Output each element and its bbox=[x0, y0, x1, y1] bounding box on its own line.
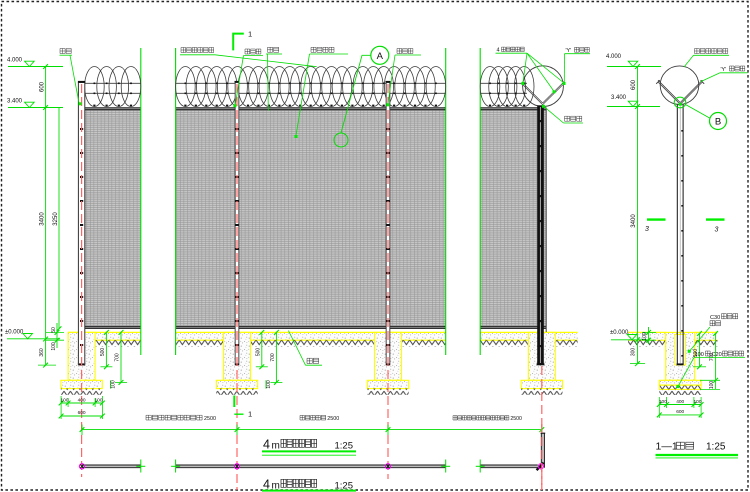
svg-text:100: 100 bbox=[111, 380, 117, 389]
svg-text:50: 50 bbox=[51, 327, 57, 333]
svg-text:A: A bbox=[377, 51, 384, 62]
svg-text:100: 100 bbox=[51, 342, 57, 351]
svg-text:3.400: 3.400 bbox=[7, 99, 23, 105]
svg-text:600: 600 bbox=[676, 409, 684, 415]
svg-text:3400: 3400 bbox=[40, 212, 46, 226]
svg-text:500: 500 bbox=[255, 348, 261, 357]
svg-text:±0.000: ±0.000 bbox=[5, 330, 24, 336]
svg-text:m: m bbox=[272, 440, 280, 451]
svg-text:4.000: 4.000 bbox=[7, 58, 23, 64]
svg-text:3.400: 3.400 bbox=[611, 95, 627, 101]
svg-text:2500: 2500 bbox=[204, 416, 216, 422]
svg-text:4: 4 bbox=[263, 437, 270, 451]
svg-text:100: 100 bbox=[642, 332, 648, 341]
svg-text:2500: 2500 bbox=[510, 416, 522, 422]
svg-text:600: 600 bbox=[631, 79, 637, 90]
svg-text:3: 3 bbox=[645, 226, 649, 233]
svg-text:400: 400 bbox=[676, 399, 684, 405]
svg-text:B: B bbox=[715, 116, 721, 127]
svg-text:400: 400 bbox=[78, 398, 86, 404]
svg-text:100: 100 bbox=[709, 381, 715, 390]
svg-text:1: 1 bbox=[248, 30, 252, 39]
svg-text:100: 100 bbox=[659, 399, 667, 405]
svg-text:600: 600 bbox=[40, 81, 46, 92]
svg-text:4: 4 bbox=[497, 48, 500, 54]
svg-text:1—1: 1—1 bbox=[656, 440, 678, 452]
svg-text:'Y': 'Y' bbox=[721, 67, 727, 73]
svg-text:100: 100 bbox=[266, 380, 272, 389]
svg-text:700: 700 bbox=[270, 353, 276, 362]
svg-text:600: 600 bbox=[78, 410, 86, 416]
svg-text:300: 300 bbox=[631, 348, 637, 357]
svg-text:3400: 3400 bbox=[631, 214, 637, 228]
svg-text:C30: C30 bbox=[710, 315, 720, 321]
svg-text:1: 1 bbox=[248, 410, 252, 419]
svg-text:100: 100 bbox=[693, 399, 701, 405]
svg-text:3250: 3250 bbox=[53, 212, 59, 226]
svg-text:1:25: 1:25 bbox=[706, 442, 726, 453]
svg-text:4: 4 bbox=[263, 477, 270, 491]
svg-text:360: 360 bbox=[39, 348, 45, 357]
svg-text:100: 100 bbox=[94, 398, 102, 404]
svg-text:2500: 2500 bbox=[327, 416, 339, 422]
svg-text:500: 500 bbox=[100, 348, 106, 357]
svg-text:4.000: 4.000 bbox=[606, 54, 622, 60]
svg-text:700: 700 bbox=[115, 353, 121, 362]
svg-text:1:25: 1:25 bbox=[335, 440, 354, 451]
svg-text:100: 100 bbox=[60, 398, 68, 404]
svg-text:±0.000: ±0.000 bbox=[610, 330, 629, 336]
svg-text:3: 3 bbox=[715, 227, 719, 234]
